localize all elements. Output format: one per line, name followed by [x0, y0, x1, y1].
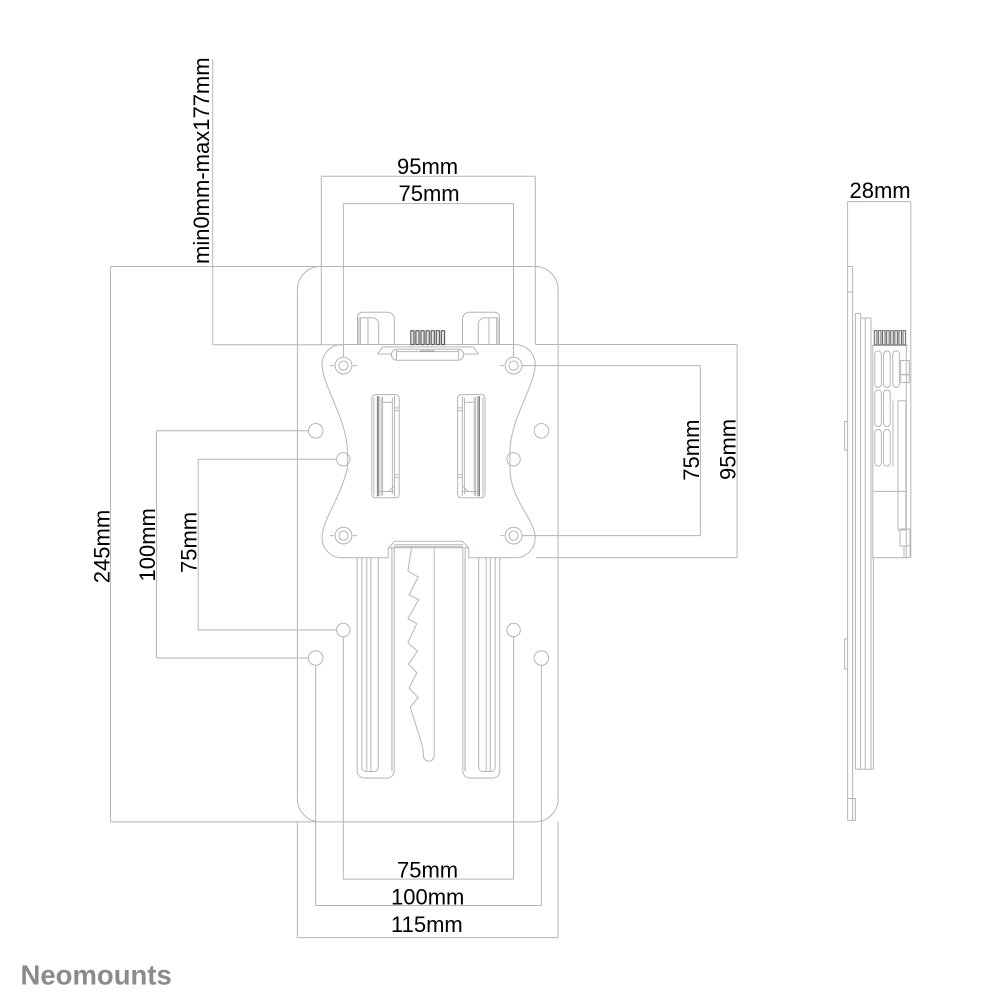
svg-text:75mm: 75mm — [177, 512, 202, 573]
svg-text:75mm: 75mm — [679, 420, 704, 481]
svg-text:75mm: 75mm — [397, 858, 458, 883]
svg-text:95mm: 95mm — [397, 154, 458, 179]
svg-text:95mm: 95mm — [716, 419, 741, 480]
svg-text:75mm: 75mm — [399, 181, 460, 206]
svg-text:115mm: 115mm — [391, 912, 463, 937]
svg-text:Neomounts: Neomounts — [21, 960, 172, 991]
svg-text:min0mm-max177mm: min0mm-max177mm — [189, 57, 214, 264]
svg-text:100mm: 100mm — [135, 508, 160, 581]
svg-text:245mm: 245mm — [90, 510, 115, 583]
svg-text:28mm: 28mm — [850, 178, 911, 203]
svg-text:100mm: 100mm — [391, 885, 464, 910]
